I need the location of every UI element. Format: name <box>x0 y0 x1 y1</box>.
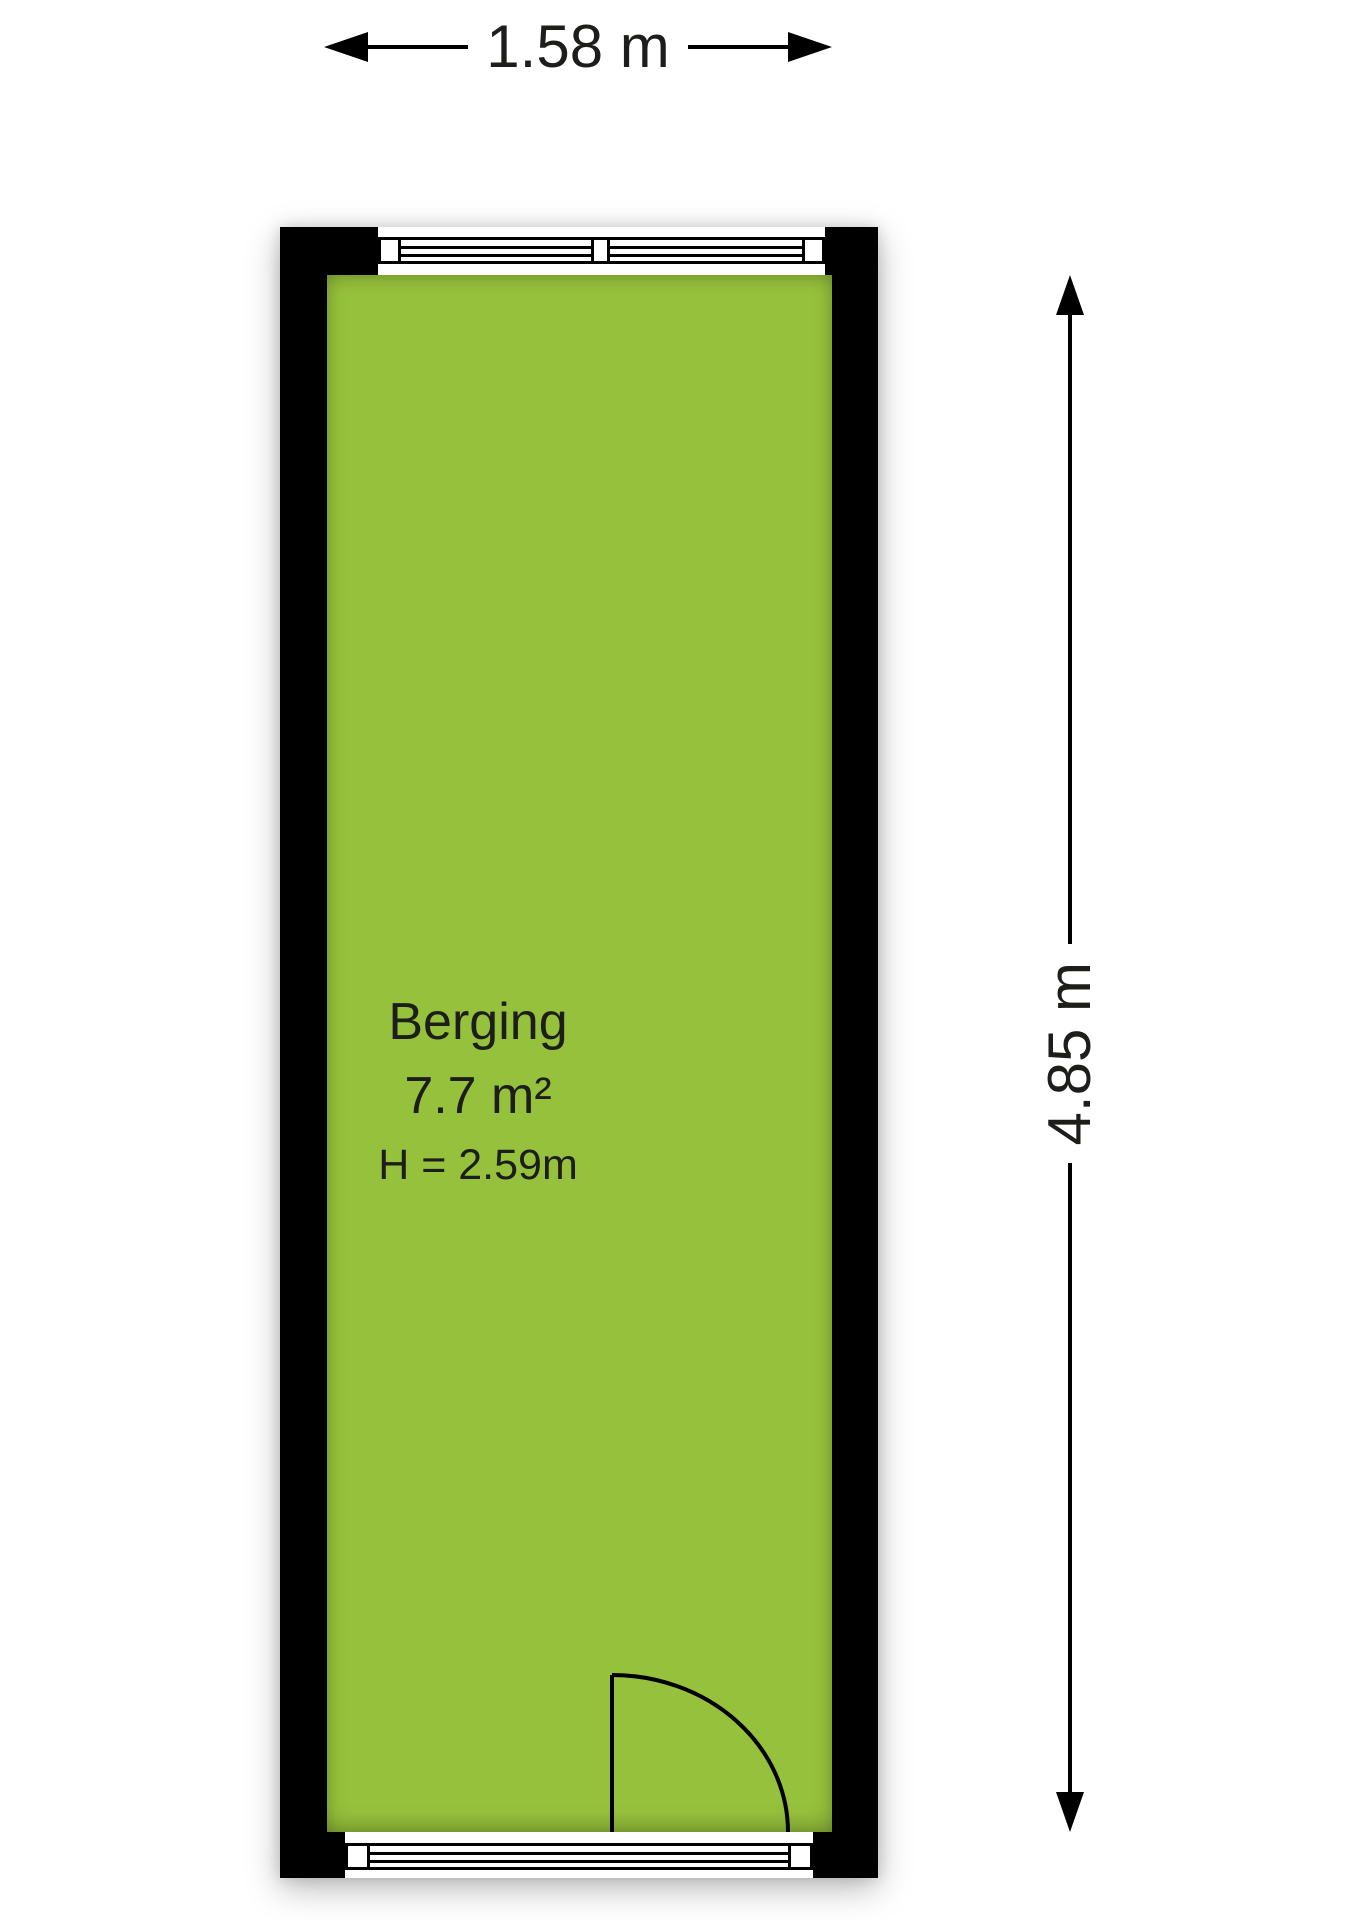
dimension-line <box>688 45 788 49</box>
dimension-line <box>1068 315 1072 944</box>
top-window-post-right <box>802 237 825 264</box>
arrow-right-icon <box>788 32 832 62</box>
arrow-left-icon <box>324 32 368 62</box>
room-name: Berging <box>328 985 628 1059</box>
arrow-up-icon <box>1056 275 1084 315</box>
room-ceiling-height: H = 2.59m <box>328 1133 628 1197</box>
wall-bottom-left-corner <box>280 1832 345 1878</box>
wall-left <box>280 275 327 1832</box>
bottom-window <box>345 1843 813 1870</box>
room-label-group: Berging 7.7 m² H = 2.59m <box>328 985 628 1197</box>
window-pane-line <box>345 1860 813 1863</box>
bottom-window-post-left <box>345 1843 370 1870</box>
height-dimension: 4.85 m <box>1044 275 1096 1832</box>
top-window-post-left <box>378 237 401 264</box>
room-area: 7.7 m² <box>328 1059 628 1133</box>
top-window-post-middle <box>591 237 610 264</box>
wall-right <box>832 275 878 1832</box>
floor-plan-canvas: 1.58 m 4.85 m Berging 7.7 m <box>0 0 1358 1920</box>
door-swing-arc-icon <box>612 1675 790 1833</box>
bottom-window-post-right <box>788 1843 813 1870</box>
wall-bottom-right-corner <box>813 1832 878 1878</box>
window-pane-line <box>345 1852 813 1855</box>
arrow-down-icon <box>1056 1792 1084 1832</box>
dimension-line <box>1068 1163 1072 1792</box>
wall-top-right-corner <box>825 227 878 275</box>
wall-top-left-corner <box>280 227 378 275</box>
dimension-line <box>368 45 468 49</box>
width-dimension-label: 1.58 m <box>486 17 669 77</box>
height-dimension-label: 4.85 m <box>1040 962 1100 1145</box>
width-dimension: 1.58 m <box>324 21 832 73</box>
